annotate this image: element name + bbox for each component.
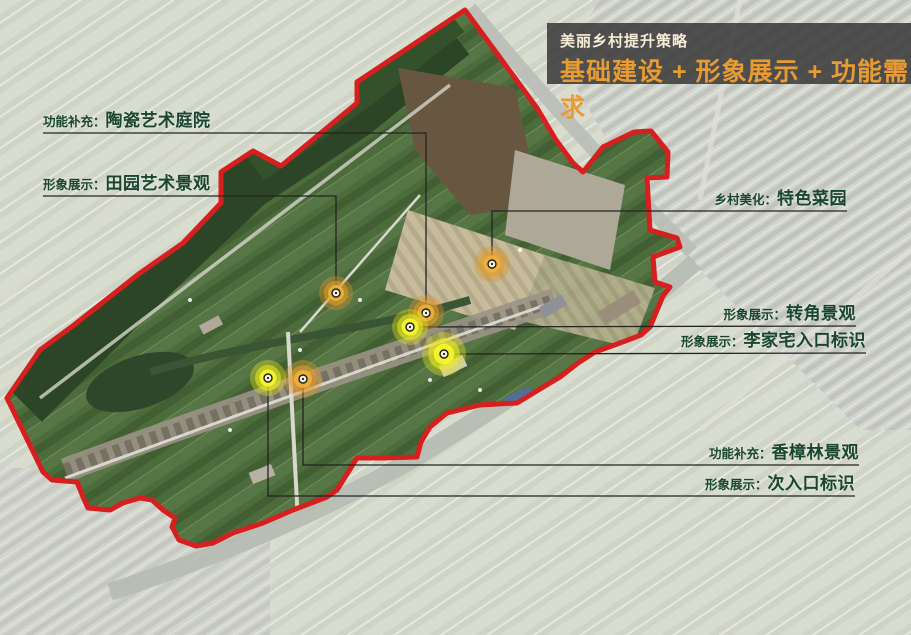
label-name: 田园艺术景观: [106, 174, 211, 193]
label-name: 陶瓷艺术庭院: [106, 111, 211, 130]
label-name: 转角景观: [786, 304, 856, 323]
label-prefix: 形象展示：: [43, 178, 106, 192]
title-block: 美丽乡村提升策略 基础建设 + 形象展示 + 功能需求: [547, 23, 911, 84]
label-prefix: 形象展示：: [723, 308, 786, 322]
label-name: 李家宅入口标识: [744, 331, 867, 350]
label-prefix: 形象展示：: [681, 335, 744, 349]
label-name: 次入口标识: [768, 474, 856, 493]
label-name: 香樟林景观: [772, 443, 860, 462]
label-prefix: 形象展示：: [705, 478, 768, 492]
label-cirukou-biaoshi: 形象展示：次入口标识: [705, 474, 855, 495]
masterplan-slide: 美丽乡村提升策略 基础建设 + 形象展示 + 功能需求 功能补充：陶瓷艺术庭院形…: [0, 0, 911, 635]
marker-xiangzhanglin-jingguan: [284, 360, 322, 398]
slide-title: 基础建设 + 形象展示 + 功能需求: [560, 52, 911, 124]
label-prefix: 功能补充：: [709, 447, 772, 461]
label-lijiazhai-rukou: 形象展示：李家宅入口标识: [681, 331, 866, 352]
label-taoci-tingyuan: 功能补充：陶瓷艺术庭院: [43, 111, 211, 132]
slide-subtitle: 美丽乡村提升策略: [560, 30, 911, 51]
marker-lijiazhai-rukou: [422, 332, 466, 376]
label-xiangzhanglin-jingguan: 功能补充：香樟林景观: [709, 443, 859, 464]
label-name: 特色菜园: [777, 189, 847, 208]
marker-tese-caiyuan: [474, 246, 510, 282]
label-tese-caiyuan: 乡村美化：特色菜园: [714, 189, 847, 210]
marker-cirukou-biaoshi: [250, 360, 286, 396]
marker-tianyuan-jingguan: [319, 276, 353, 310]
label-prefix: 功能补充：: [43, 115, 106, 129]
label-zhuanjiao-jingguan: 形象展示：转角景观: [723, 304, 856, 325]
label-tianyuan-jingguan: 形象展示：田园艺术景观: [43, 174, 211, 195]
label-prefix: 乡村美化：: [714, 193, 777, 207]
marker-zhuanjiao-jingguan: [392, 309, 428, 345]
